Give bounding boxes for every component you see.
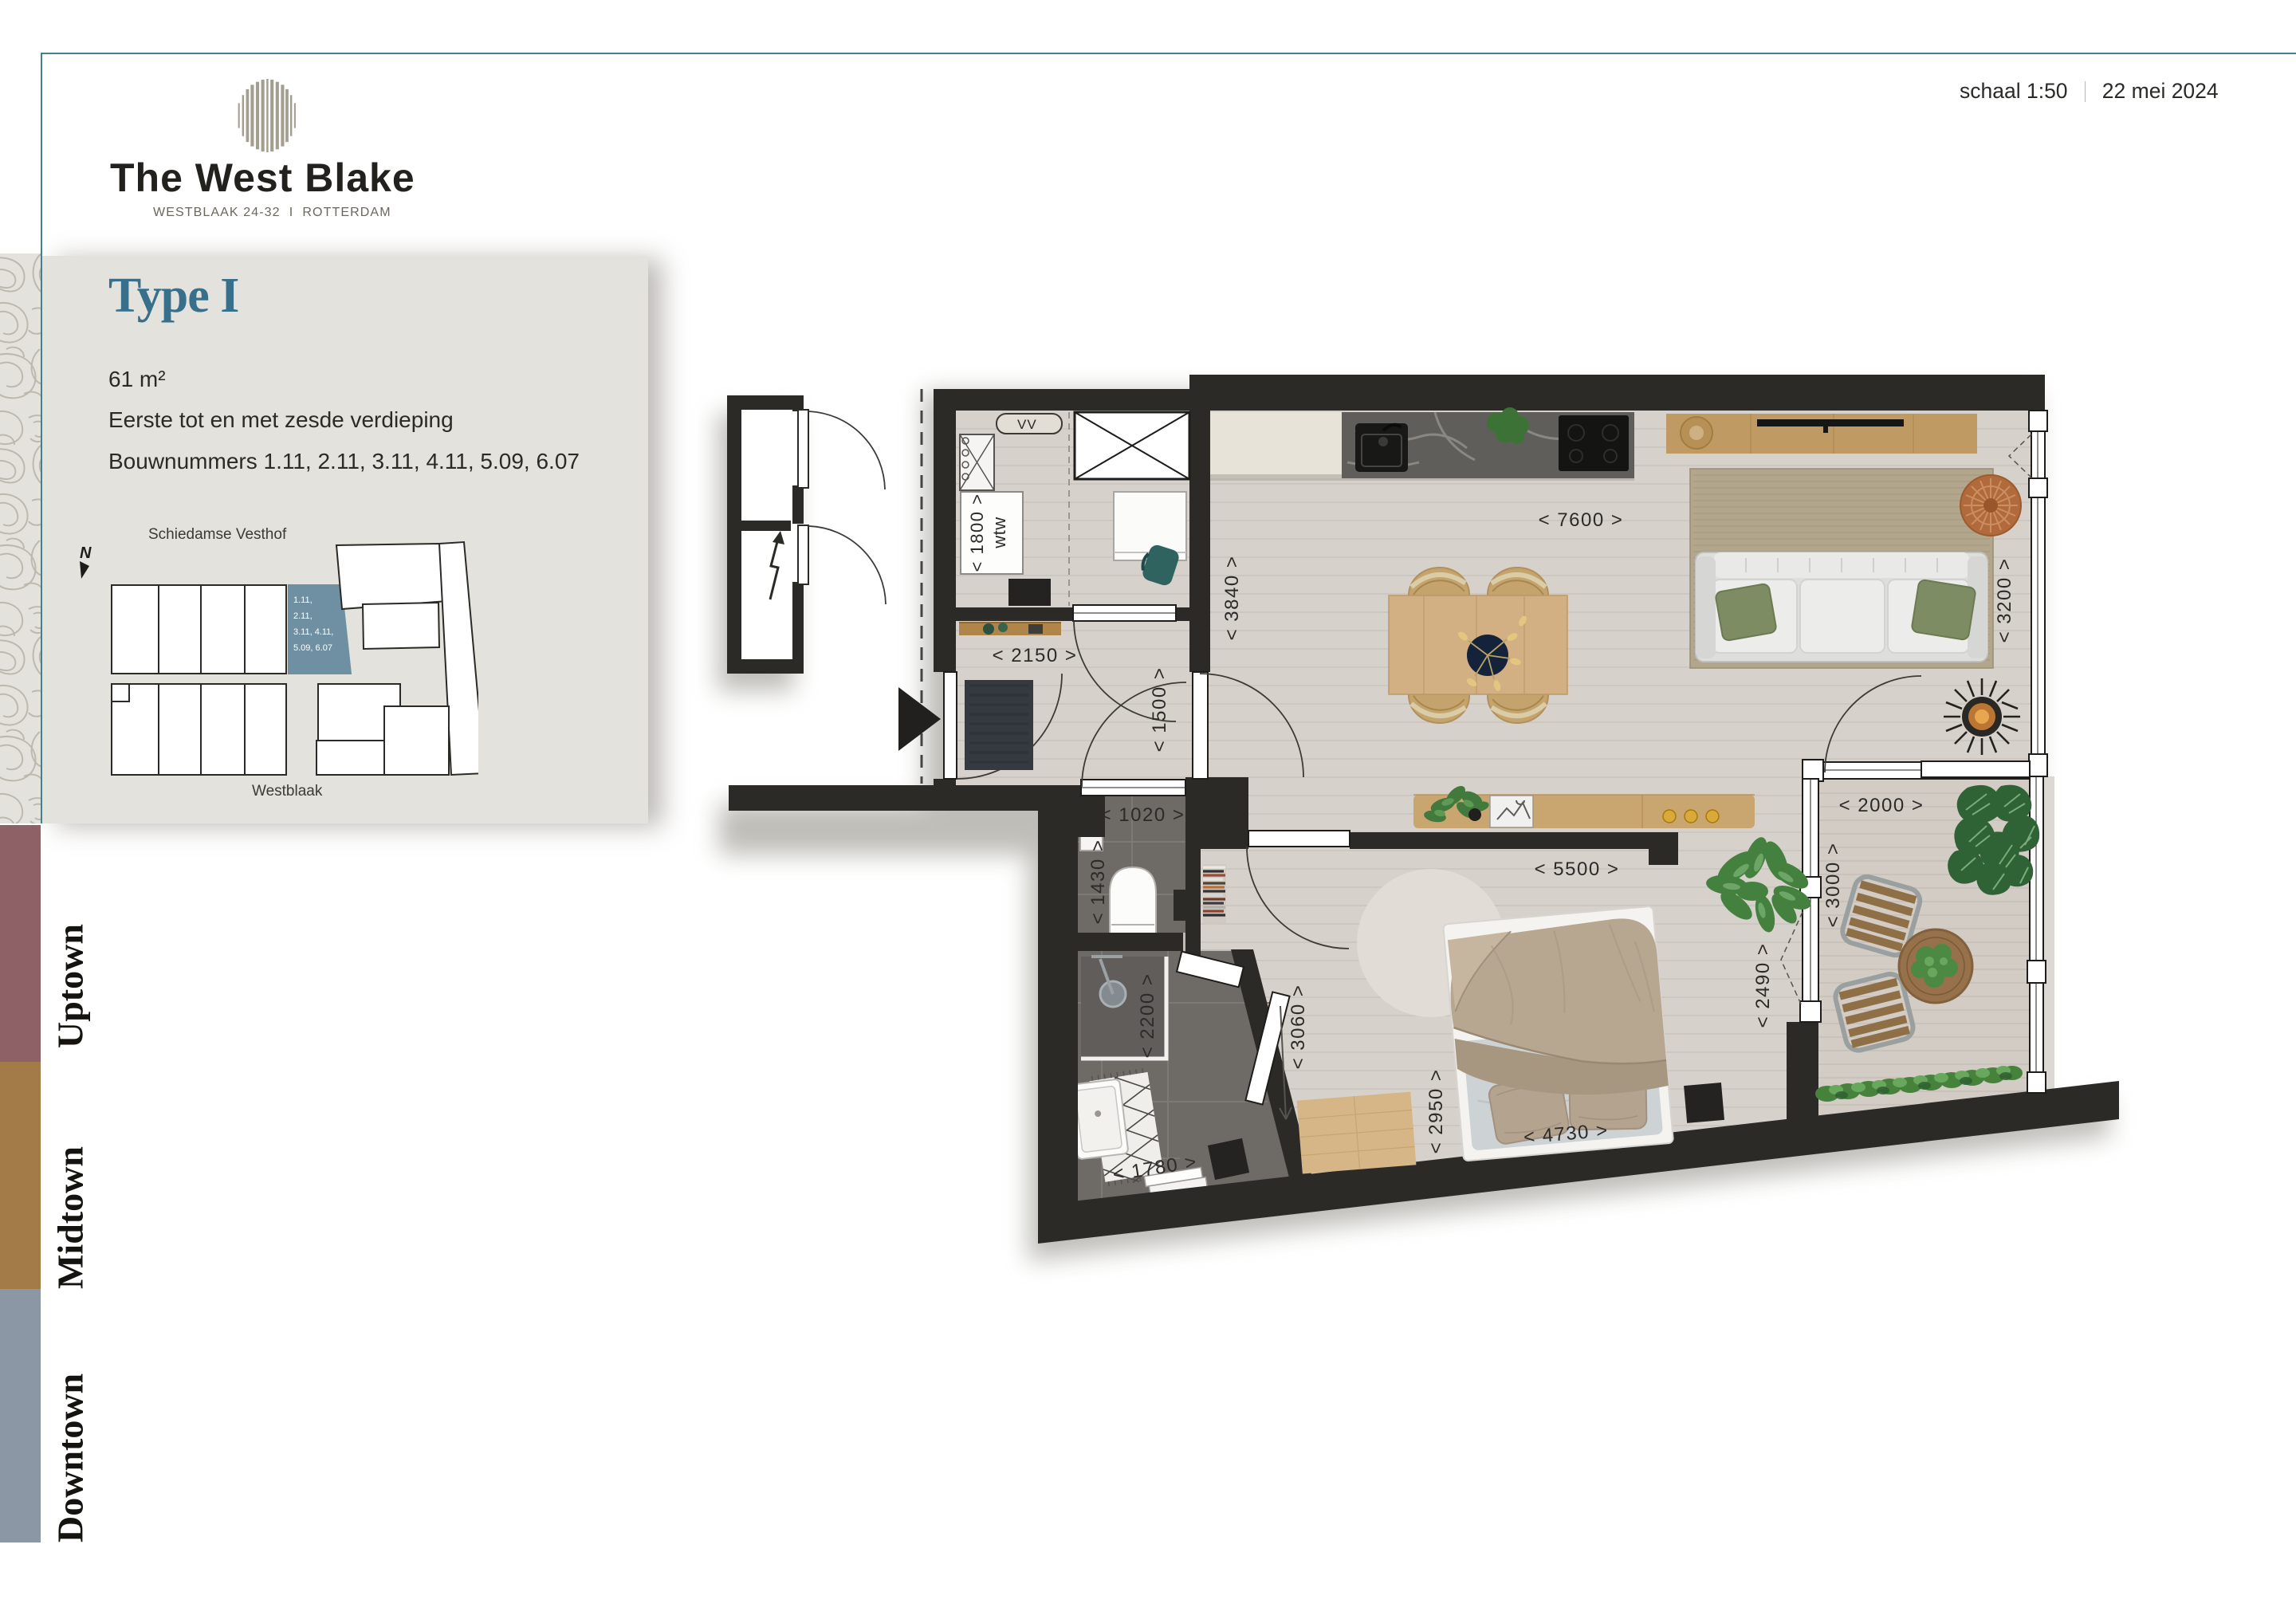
svg-text:< 1500 >: < 1500 > [1149,667,1170,753]
svg-text:< 2000 >: < 2000 > [1839,795,1924,816]
svg-text:< 1800 >: < 1800 > [967,493,987,572]
svg-text:< 1020 >: < 1020 > [1100,804,1185,826]
svg-text:< 7600 >: < 7600 > [1539,509,1624,531]
svg-text:< 1430 >: < 1430 > [1087,839,1109,925]
svg-text:< 3060 >: < 3060 > [1288,984,1309,1070]
svg-text:wtw: wtw [989,517,1009,548]
svg-text:< 3000 >: < 3000 > [1822,843,1844,928]
svg-text:< 2950 >: < 2950 > [1425,1069,1447,1154]
svg-text:< 3200 >: < 3200 > [1994,558,2015,643]
svg-text:VV: VV [1017,417,1037,432]
svg-text:< 2150 >: < 2150 > [993,645,1078,666]
svg-text:< 3840 >: < 3840 > [1221,556,1243,641]
svg-text:< 2490 >: < 2490 > [1752,943,1774,1028]
svg-text:< 5500 >: < 5500 > [1535,859,1620,880]
svg-text:< 2200 >: < 2200 > [1137,973,1158,1059]
